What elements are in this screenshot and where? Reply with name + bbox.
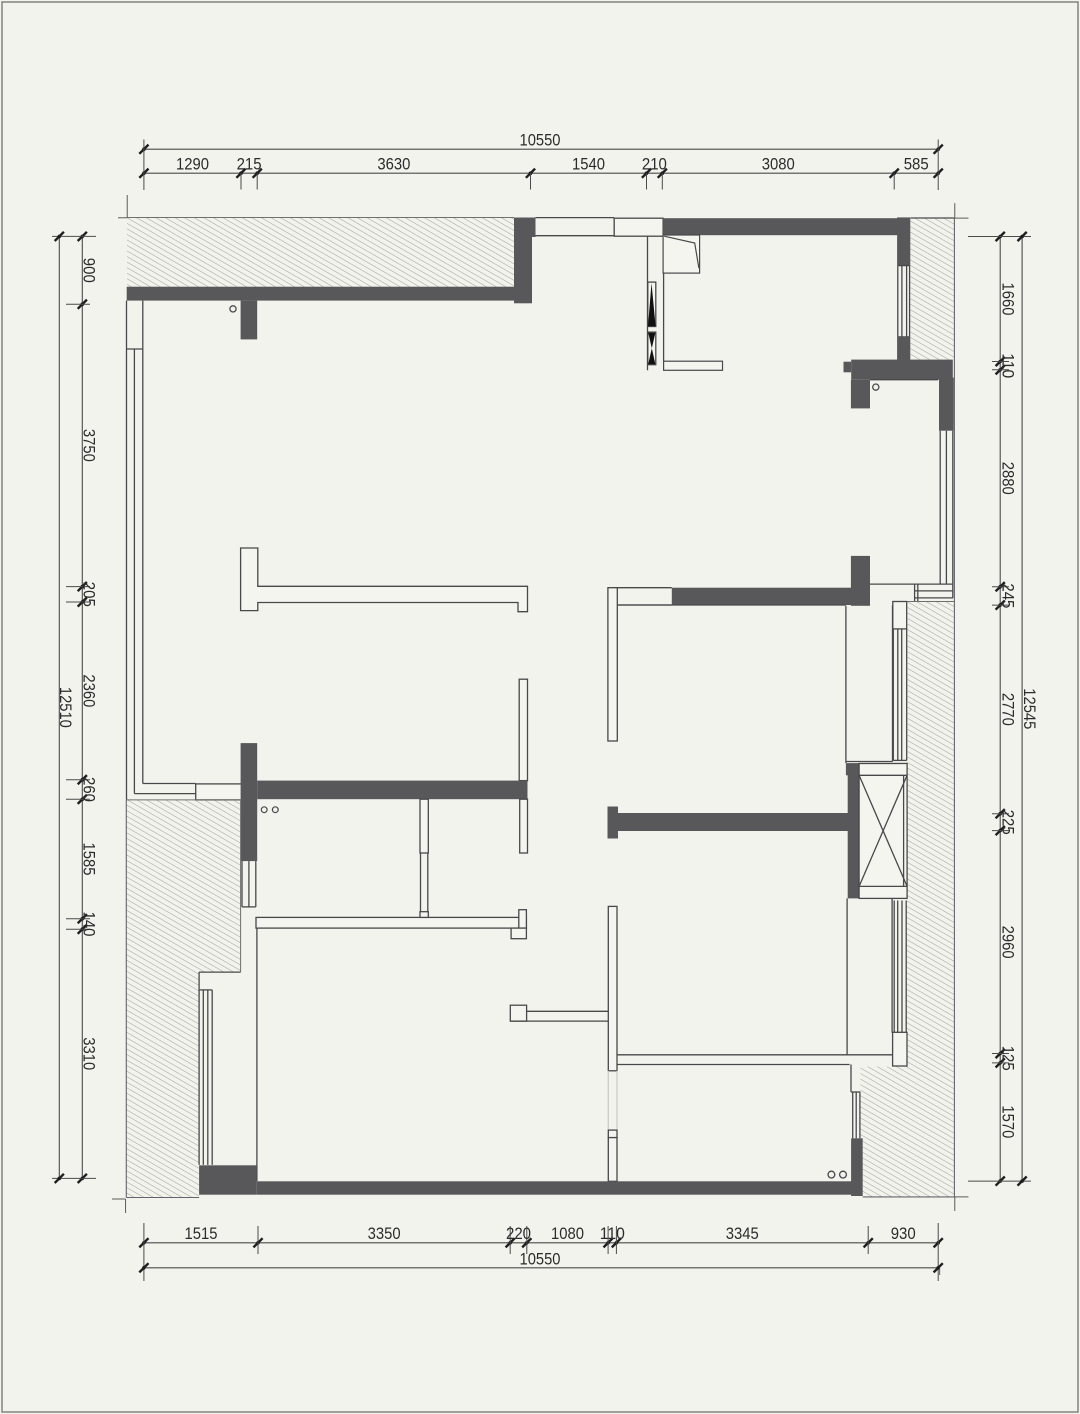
svg-text:245: 245: [999, 583, 1018, 608]
svg-text:140: 140: [79, 912, 98, 937]
svg-text:12510: 12510: [56, 687, 75, 728]
svg-text:220: 220: [506, 1224, 531, 1243]
svg-text:1585: 1585: [79, 843, 98, 876]
svg-text:1080: 1080: [551, 1224, 584, 1243]
svg-text:110: 110: [999, 353, 1018, 378]
svg-text:3630: 3630: [377, 154, 410, 173]
svg-text:210: 210: [642, 154, 667, 173]
svg-text:3310: 3310: [79, 1037, 98, 1070]
svg-text:3345: 3345: [726, 1224, 759, 1243]
svg-text:12545: 12545: [1020, 688, 1039, 729]
svg-text:2880: 2880: [999, 462, 1018, 495]
svg-text:10550: 10550: [520, 1249, 561, 1268]
svg-text:1570: 1570: [999, 1105, 1018, 1138]
svg-text:225: 225: [999, 810, 1018, 835]
svg-text:3080: 3080: [762, 154, 795, 173]
svg-text:2960: 2960: [999, 926, 1018, 959]
svg-text:1540: 1540: [572, 154, 605, 173]
svg-text:1660: 1660: [999, 283, 1018, 316]
svg-text:125: 125: [999, 1046, 1018, 1071]
svg-text:205: 205: [79, 582, 98, 607]
svg-text:10550: 10550: [520, 131, 561, 150]
svg-text:2360: 2360: [79, 674, 98, 707]
svg-text:110: 110: [600, 1224, 625, 1243]
svg-text:3750: 3750: [79, 429, 98, 462]
svg-text:215: 215: [237, 154, 262, 173]
svg-text:585: 585: [904, 154, 929, 173]
svg-text:930: 930: [891, 1224, 916, 1243]
svg-text:3350: 3350: [368, 1224, 401, 1243]
svg-text:1290: 1290: [176, 154, 209, 173]
svg-text:900: 900: [79, 258, 98, 283]
svg-text:2770: 2770: [999, 693, 1018, 726]
svg-text:1515: 1515: [185, 1224, 218, 1243]
svg-text:260: 260: [79, 777, 98, 802]
